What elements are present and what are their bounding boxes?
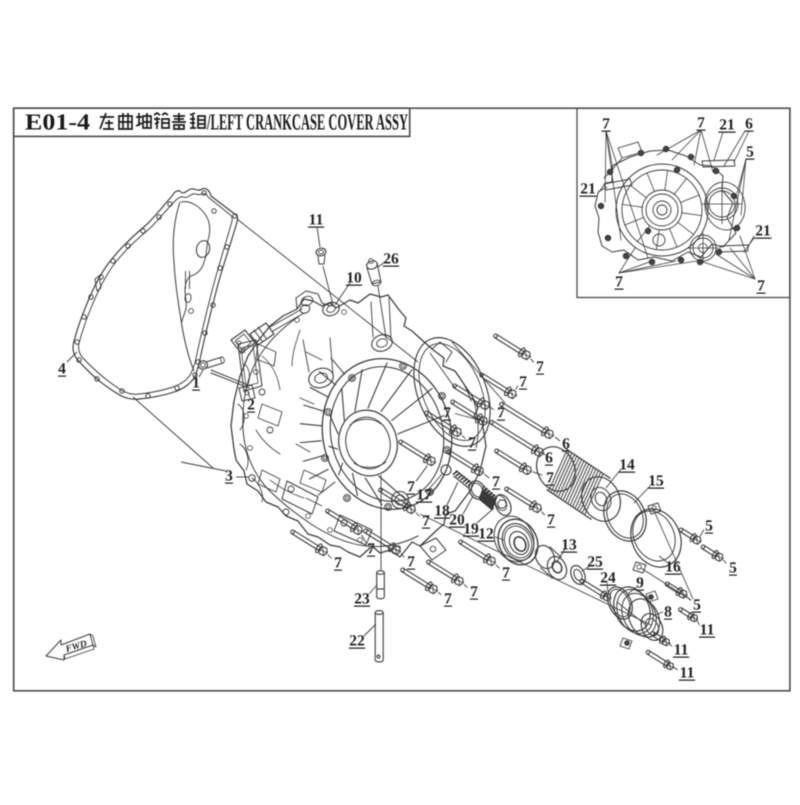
svg-text:10: 10 [346, 270, 362, 287]
svg-text:17: 17 [416, 487, 432, 504]
svg-text:1: 1 [192, 375, 200, 392]
svg-text:11: 11 [700, 622, 715, 639]
svg-text:14: 14 [619, 457, 635, 474]
svg-text:21: 21 [580, 181, 596, 198]
svg-text:7: 7 [615, 274, 623, 291]
svg-text:22: 22 [349, 633, 365, 650]
svg-text:7: 7 [334, 555, 342, 572]
svg-text:7: 7 [547, 512, 555, 529]
svg-text:7: 7 [470, 584, 478, 601]
svg-text:11: 11 [674, 642, 689, 659]
svg-text:19: 19 [463, 521, 479, 538]
svg-text:E01-4: E01-4 [25, 110, 91, 135]
svg-text:4: 4 [58, 361, 66, 378]
svg-text:23: 23 [354, 591, 370, 608]
svg-text:7: 7 [444, 591, 452, 608]
svg-text:12: 12 [478, 526, 494, 543]
svg-text:5: 5 [746, 144, 754, 161]
svg-text:11: 11 [680, 665, 695, 682]
svg-text:18: 18 [434, 503, 450, 520]
svg-text:7: 7 [536, 359, 544, 376]
svg-text:7: 7 [757, 278, 765, 295]
svg-text:7: 7 [407, 554, 415, 571]
svg-text:9: 9 [636, 575, 644, 592]
svg-text:15: 15 [648, 473, 664, 490]
svg-text:24: 24 [600, 570, 616, 587]
svg-text:7: 7 [407, 479, 415, 496]
svg-text:7: 7 [519, 374, 527, 391]
svg-text:11: 11 [309, 212, 324, 229]
svg-text:25: 25 [587, 554, 603, 571]
svg-text:7: 7 [497, 405, 505, 422]
svg-text:/LEFT CRANKCASE COVER ASSY: /LEFT CRANKCASE COVER ASSY [206, 110, 408, 135]
svg-text:6: 6 [745, 116, 753, 133]
svg-text:6: 6 [545, 450, 553, 467]
svg-text:7: 7 [468, 435, 476, 452]
svg-text:2: 2 [247, 397, 255, 414]
svg-text:26: 26 [383, 251, 399, 268]
svg-text:7: 7 [443, 405, 451, 422]
svg-text:7: 7 [602, 116, 610, 133]
svg-text:21: 21 [755, 223, 771, 240]
svg-text:7: 7 [492, 474, 500, 491]
svg-text:8: 8 [664, 604, 672, 621]
svg-text:7: 7 [697, 115, 705, 132]
svg-text:7: 7 [502, 565, 510, 582]
svg-text:21: 21 [719, 117, 735, 134]
svg-text:3: 3 [225, 468, 233, 485]
svg-text:5: 5 [705, 518, 713, 535]
svg-text:5: 5 [729, 560, 737, 577]
svg-text:7: 7 [367, 541, 375, 558]
svg-text:7: 7 [546, 470, 554, 487]
svg-text:5: 5 [693, 597, 701, 614]
